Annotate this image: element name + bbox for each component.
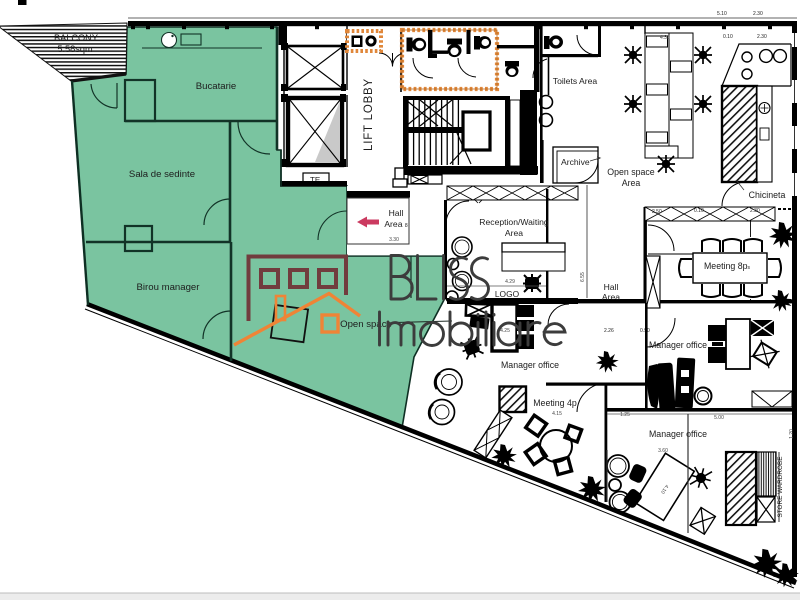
svg-text:Area 8: Area 8	[384, 219, 408, 229]
svg-text:2.26: 2.26	[604, 328, 614, 334]
svg-text:4.25: 4.25	[500, 328, 510, 334]
svg-text:Manager office: Manager office	[649, 340, 707, 350]
svg-text:Manager office: Manager office	[501, 360, 559, 370]
svg-text:Chicineta: Chicineta	[749, 190, 786, 200]
svg-text:1.20: 1.20	[789, 429, 795, 439]
svg-text:Reception/Waiting: Reception/Waiting	[479, 217, 549, 227]
svg-text:Area: Area	[505, 228, 523, 238]
svg-text:0.10: 0.10	[694, 208, 704, 214]
svg-text:5.58sqm: 5.58sqm	[57, 44, 93, 54]
svg-text:Sala de sedinte: Sala de sedinte	[129, 169, 195, 180]
svg-text:0.10: 0.10	[723, 34, 733, 40]
svg-text:5.10: 5.10	[717, 11, 727, 17]
svg-text:2.30: 2.30	[757, 34, 767, 40]
svg-text:LOGO: LOGO	[495, 289, 520, 299]
svg-text:Hall: Hall	[604, 282, 619, 292]
svg-text:Manager office: Manager office	[649, 429, 707, 439]
svg-text:3.60: 3.60	[658, 448, 668, 454]
svg-text:4.38: 4.38	[660, 35, 670, 41]
svg-text:Toilets Area: Toilets Area	[553, 76, 598, 86]
svg-text:2.30: 2.30	[753, 11, 763, 17]
svg-text:BALCONY: BALCONY	[54, 33, 98, 43]
svg-text:Open space: Open space	[607, 167, 655, 177]
svg-text:5.00: 5.00	[714, 415, 724, 421]
svg-text:6.55: 6.55	[580, 272, 586, 282]
svg-text:LIFT LOBBY: LIFT LOBBY	[363, 78, 375, 151]
svg-text:Archive: Archive	[561, 157, 590, 167]
svg-text:Open space: Open space	[340, 319, 392, 330]
svg-text:Hall: Hall	[389, 208, 404, 218]
svg-text:2.30: 2.30	[750, 208, 760, 214]
svg-text:Area: Area	[602, 292, 620, 302]
svg-text:0.90: 0.90	[640, 328, 650, 334]
svg-text:Bucatarie: Bucatarie	[196, 81, 237, 92]
svg-text:Area: Area	[622, 178, 641, 188]
svg-text:3.30: 3.30	[389, 237, 399, 243]
svg-text:4.15: 4.15	[552, 411, 562, 417]
svg-text:Meeting 4p: Meeting 4p	[533, 398, 577, 408]
svg-text:2.50: 2.50	[652, 209, 662, 215]
svg-text:Meeting 8ps: Meeting 8ps	[704, 261, 751, 271]
svg-text:1.25: 1.25	[620, 412, 630, 418]
svg-text:4.29: 4.29	[505, 279, 515, 285]
svg-text:STORE WARDROBE: STORE WARDROBE	[777, 456, 784, 517]
svg-text:Birou manager: Birou manager	[137, 282, 201, 293]
